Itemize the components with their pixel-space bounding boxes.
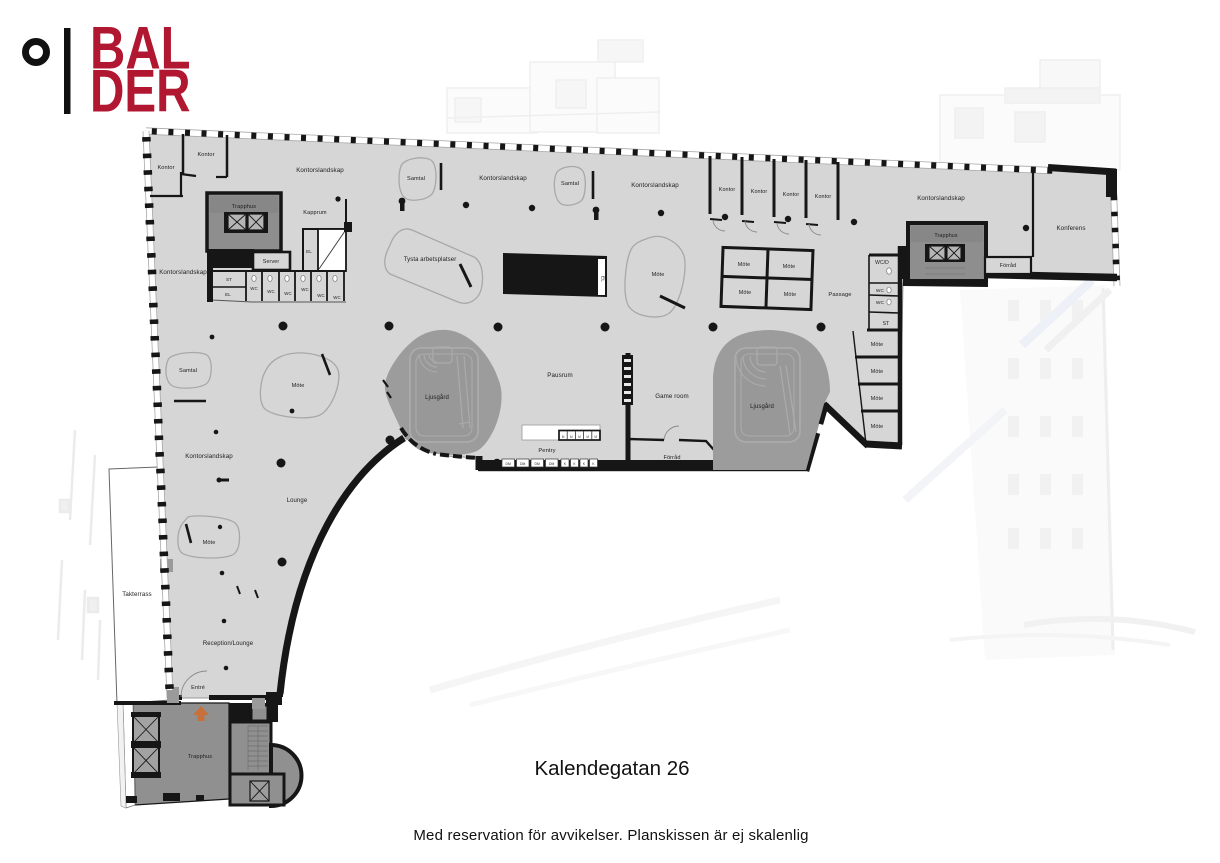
svg-text:Kalendegatan 26: Kalendegatan 26 [534,757,689,780]
svg-text:Trapphus: Trapphus [934,233,958,239]
svg-text:Kontor: Kontor [783,192,800,198]
svg-text:Takterrass: Takterrass [122,591,152,598]
svg-text:WC: WC [250,286,258,291]
svg-text:WC: WC [876,288,885,294]
svg-text:Möte: Möte [871,369,883,375]
svg-text:Möte: Möte [783,264,795,270]
svg-text:Kontorslandskap: Kontorslandskap [479,175,527,182]
svg-text:Kontorslandskap: Kontorslandskap [296,167,344,174]
svg-text:Kontorslandskap: Kontorslandskap [917,195,965,202]
svg-text:Ljusgård: Ljusgård [425,394,449,401]
svg-text:M: M [578,435,581,439]
svg-text:WC: WC [301,287,309,292]
svg-text:Möte: Möte [292,383,305,389]
svg-text:DM: DM [520,462,526,466]
svg-text:Kontor: Kontor [719,187,736,193]
svg-text:WC: WC [284,291,292,296]
svg-text:Samtal: Samtal [561,181,579,187]
svg-text:Pausrum: Pausrum [547,372,572,379]
svg-text:ST: ST [226,277,232,282]
svg-text:Möte: Möte [871,342,883,348]
svg-text:Förråd: Förråd [1000,262,1016,269]
svg-text:M: M [570,435,573,439]
svg-text:Kontor: Kontor [815,194,832,200]
svg-text:Kontorslandskap: Kontorslandskap [631,182,679,189]
svg-text:Möte: Möte [203,540,216,546]
svg-text:Kontor: Kontor [751,189,768,195]
svg-text:WC/D: WC/D [875,260,889,266]
svg-text:Trapphus: Trapphus [188,754,212,760]
svg-text:Kontor: Kontor [157,165,174,171]
svg-text:Konferens: Konferens [1056,225,1085,232]
svg-text:Kontorslandskap: Kontorslandskap [185,453,233,460]
svg-text:Möte: Möte [871,424,883,430]
svg-text:Möte: Möte [784,292,796,298]
svg-text:EL: EL [306,249,312,254]
svg-text:Entré: Entré [191,685,205,691]
svg-text:WC: WC [267,289,275,294]
svg-text:Lounge: Lounge [287,498,308,504]
svg-text:EL: EL [600,276,606,282]
svg-text:Game room: Game room [655,393,689,400]
svg-text:EL: EL [225,292,231,297]
svg-text:M: M [595,435,598,439]
svg-text:Samtal: Samtal [407,176,425,182]
svg-text:M: M [562,435,565,439]
svg-text:Trapphus: Trapphus [232,204,256,210]
svg-text:Möte: Möte [738,262,750,268]
svg-text:WC: WC [333,295,341,300]
svg-text:Kontorslandskap: Kontorslandskap [159,269,207,276]
svg-text:Möte: Möte [871,396,883,402]
svg-text:DM: DM [549,462,555,466]
svg-text:M: M [586,435,589,439]
svg-text:Server: Server [263,259,280,265]
svg-text:Förråd: Förråd [663,454,680,461]
svg-text:DER: DER [90,58,191,125]
svg-text:Med reservation för avvikelser: Med reservation för avvikelser. Planskis… [413,827,808,844]
svg-text:Kapprum: Kapprum [303,210,327,216]
svg-text:DM: DM [534,462,540,466]
svg-text:Möte: Möte [652,272,665,278]
svg-text:Samtal: Samtal [179,368,197,374]
svg-text:ST: ST [883,321,891,327]
svg-text:Ljusgård: Ljusgård [750,403,774,410]
svg-text:Möte: Möte [739,290,751,296]
svg-text:WC: WC [876,300,885,306]
svg-text:Tysta arbetsplatser: Tysta arbetsplatser [404,257,457,263]
svg-text:Reception/Lounge: Reception/Lounge [203,641,254,647]
svg-text:WC: WC [317,293,325,298]
svg-text:Pentry: Pentry [538,448,555,454]
svg-text:Kontor: Kontor [197,152,214,158]
svg-text:DM: DM [505,462,511,466]
svg-text:Passage: Passage [828,292,851,298]
